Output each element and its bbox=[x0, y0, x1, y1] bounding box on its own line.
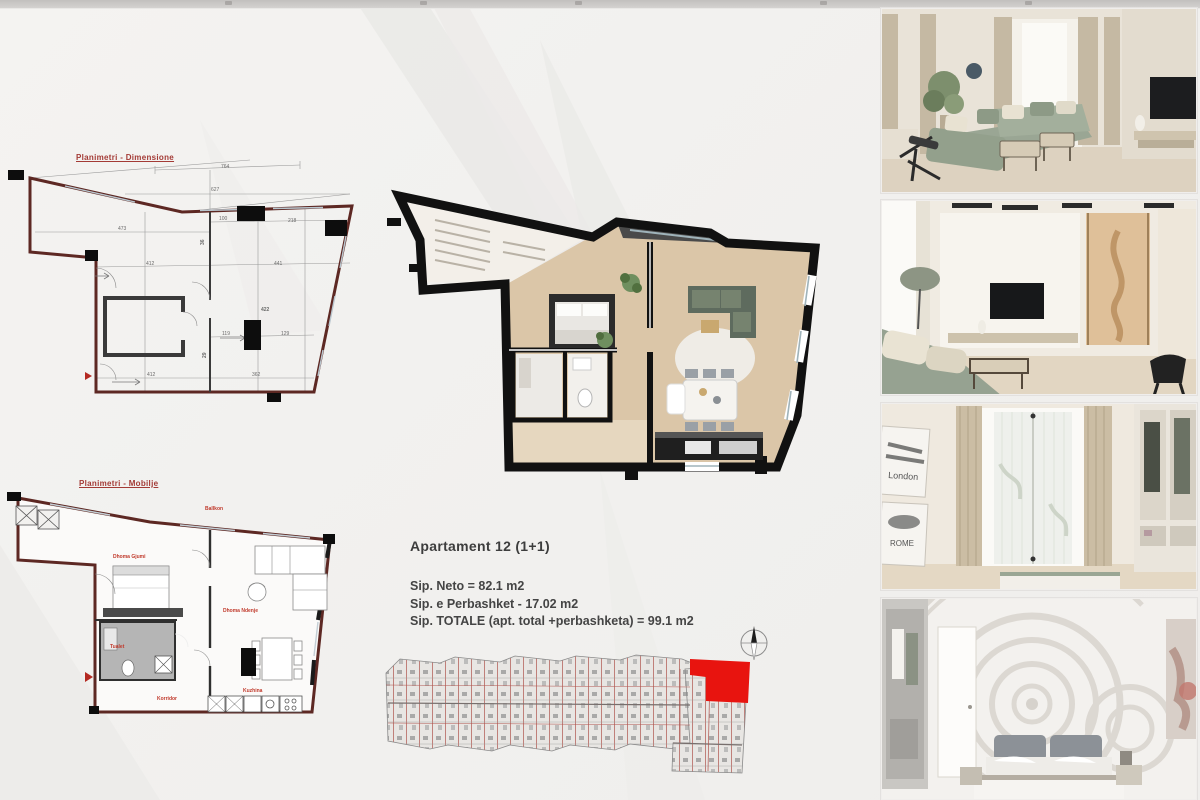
glass-panel bbox=[1086, 213, 1150, 345]
svg-text:764: 764 bbox=[221, 164, 230, 170]
entrance-arrow bbox=[85, 372, 92, 380]
render-living-room-photo bbox=[881, 8, 1197, 193]
window bbox=[980, 408, 1086, 566]
svg-text:119: 119 bbox=[222, 331, 230, 337]
svg-text:473: 473 bbox=[118, 226, 127, 232]
wall-art bbox=[1166, 619, 1197, 739]
bathroom bbox=[100, 622, 188, 680]
presentation-sheet: Planimetri - Dimensione 764 627 473 100 … bbox=[0, 0, 1200, 800]
bed-foot bbox=[1000, 574, 1120, 590]
render-bedroom-window-photo: London ROME bbox=[881, 403, 1197, 590]
apartment-title: Apartament 12 (1+1) bbox=[410, 538, 694, 554]
living-room-label: Dhoma Ndenje bbox=[223, 608, 258, 614]
svg-text:36: 36 bbox=[200, 239, 206, 245]
window-lines bbox=[65, 186, 346, 376]
bedroom-window-scene: London ROME bbox=[882, 404, 1197, 590]
wall-art-london-text: London bbox=[888, 470, 919, 482]
bedroom-label: Dhoma Gjumi bbox=[113, 554, 146, 560]
bathroom-3d bbox=[516, 354, 607, 417]
svg-text:627: 627 bbox=[211, 187, 220, 193]
kitchen-3d bbox=[655, 432, 763, 460]
svg-text:422: 422 bbox=[261, 307, 270, 313]
svg-text:362: 362 bbox=[252, 372, 261, 378]
dining-table bbox=[252, 638, 302, 680]
bed-runner bbox=[1000, 572, 1120, 576]
area-total: Sip. TOTALE (apt. total +perbashketa) = … bbox=[410, 613, 694, 631]
floor-plan-3d bbox=[385, 180, 835, 495]
door bbox=[938, 627, 976, 777]
render-tv-wall-photo bbox=[881, 200, 1197, 395]
wardrobe bbox=[1134, 404, 1197, 572]
wall-decor bbox=[966, 63, 982, 79]
kitchen-counter bbox=[208, 696, 302, 712]
render-bedroom-circles-photo bbox=[881, 598, 1197, 800]
apartment-info: Apartament 12 (1+1) Sip. Neto = 82.1 m2 … bbox=[410, 538, 694, 631]
structural-column bbox=[241, 648, 256, 676]
svg-text:441: 441 bbox=[274, 261, 283, 267]
area-net: Sip. Neto = 82.1 m2 bbox=[410, 578, 694, 596]
top-edge-mark bbox=[820, 1, 827, 5]
bedroom-circles-scene bbox=[882, 599, 1197, 800]
interior-walls bbox=[105, 212, 210, 392]
right-wall bbox=[1158, 209, 1197, 359]
hall-floor bbox=[509, 420, 647, 467]
flow-arrows bbox=[95, 273, 245, 385]
top-edge-mark bbox=[1025, 1, 1032, 5]
closet-mirror bbox=[882, 599, 928, 789]
structural-columns bbox=[8, 170, 347, 402]
living-room-scene bbox=[882, 9, 1197, 193]
svg-text:29: 29 bbox=[202, 352, 208, 358]
svg-text:412: 412 bbox=[146, 261, 155, 267]
entrance-arrow bbox=[85, 672, 93, 682]
apartment-outer-wall bbox=[30, 178, 352, 392]
balcony-label: Ballkon bbox=[205, 506, 223, 512]
svg-text:412: 412 bbox=[147, 372, 156, 378]
top-edge-mark bbox=[575, 1, 582, 5]
corridor-label: Korridor bbox=[157, 696, 177, 702]
kitchen-label: Kuzhina bbox=[243, 688, 263, 694]
building-key-plan bbox=[380, 645, 780, 790]
wall-art-rome-text: ROME bbox=[890, 539, 914, 548]
dimension-lines bbox=[30, 160, 350, 392]
area-common: Sip. e Perbashket - 17.02 m2 bbox=[410, 596, 694, 614]
top-edge-mark bbox=[225, 1, 232, 5]
dimension-floor-plan: 764 627 473 100 218 412 441 422 119 129 … bbox=[5, 150, 360, 410]
top-edge-mark bbox=[420, 1, 427, 5]
door-arcs bbox=[96, 268, 210, 380]
furniture-floor-plan: Dhoma Gjumi Tualet Dhoma Ndenje bbox=[5, 470, 360, 745]
tv-room-scene bbox=[882, 201, 1197, 395]
toilet-label: Tualet bbox=[110, 644, 125, 650]
svg-text:218: 218 bbox=[288, 218, 297, 224]
svg-text:129: 129 bbox=[281, 331, 290, 337]
svg-text:100: 100 bbox=[219, 216, 228, 222]
